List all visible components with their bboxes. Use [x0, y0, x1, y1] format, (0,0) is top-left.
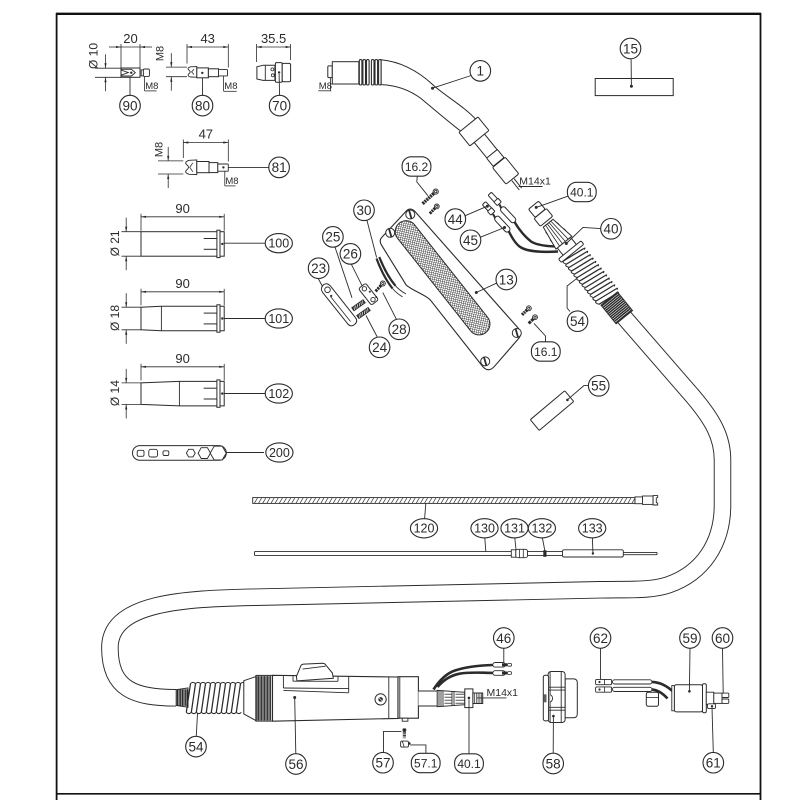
- svg-text:13: 13: [499, 272, 514, 287]
- svg-text:30: 30: [356, 203, 371, 218]
- svg-text:56: 56: [288, 757, 303, 772]
- svg-text:24: 24: [372, 340, 388, 355]
- svg-text:55: 55: [591, 379, 606, 394]
- svg-text:M8: M8: [224, 81, 237, 92]
- svg-text:130: 130: [474, 522, 495, 536]
- svg-text:62: 62: [593, 631, 608, 646]
- svg-text:57: 57: [375, 756, 390, 771]
- svg-text:20: 20: [123, 31, 137, 46]
- svg-text:100: 100: [268, 237, 289, 251]
- svg-text:90: 90: [175, 201, 189, 216]
- svg-text:16.2: 16.2: [405, 160, 429, 174]
- svg-text:132: 132: [531, 522, 552, 536]
- svg-text:54: 54: [570, 314, 586, 329]
- svg-text:M8: M8: [225, 176, 238, 187]
- svg-text:60: 60: [715, 631, 730, 646]
- svg-text:90: 90: [175, 351, 189, 366]
- svg-text:26: 26: [343, 247, 358, 262]
- svg-text:Ø 18: Ø 18: [108, 305, 122, 331]
- svg-text:43: 43: [200, 31, 214, 46]
- svg-text:81: 81: [272, 160, 287, 175]
- svg-text:M14x1: M14x1: [487, 687, 519, 699]
- svg-text:57.1: 57.1: [414, 756, 438, 770]
- svg-text:44: 44: [448, 212, 464, 227]
- svg-text:101: 101: [268, 312, 289, 326]
- svg-text:133: 133: [582, 522, 603, 536]
- svg-text:102: 102: [268, 387, 289, 401]
- svg-text:40: 40: [603, 222, 618, 237]
- svg-text:25: 25: [325, 230, 340, 245]
- svg-text:M14x1: M14x1: [519, 175, 551, 187]
- svg-text:M8: M8: [145, 81, 158, 92]
- svg-text:15: 15: [623, 41, 638, 56]
- svg-text:47: 47: [199, 127, 213, 142]
- svg-text:40.1: 40.1: [570, 185, 594, 199]
- svg-text:61: 61: [706, 756, 721, 771]
- svg-text:Ø 14: Ø 14: [108, 380, 122, 406]
- svg-text:Ø 21: Ø 21: [108, 230, 122, 256]
- svg-text:46: 46: [496, 631, 511, 646]
- svg-text:M8: M8: [319, 81, 332, 92]
- svg-text:Ø 10: Ø 10: [87, 43, 101, 69]
- svg-text:40.1: 40.1: [457, 757, 481, 771]
- svg-text:131: 131: [504, 522, 525, 536]
- svg-text:M8: M8: [154, 142, 166, 157]
- svg-text:23: 23: [311, 261, 326, 276]
- svg-text:200: 200: [269, 446, 290, 460]
- svg-text:59: 59: [682, 631, 697, 646]
- svg-text:70: 70: [272, 98, 287, 113]
- svg-text:M8: M8: [155, 46, 167, 61]
- svg-text:58: 58: [546, 756, 561, 771]
- svg-text:45: 45: [463, 233, 478, 248]
- svg-text:90: 90: [122, 98, 137, 113]
- svg-text:54: 54: [188, 739, 204, 754]
- svg-text:120: 120: [414, 522, 435, 536]
- svg-text:35.5: 35.5: [261, 31, 286, 46]
- svg-text:1: 1: [477, 64, 485, 79]
- svg-text:90: 90: [175, 276, 189, 291]
- svg-text:80: 80: [195, 98, 210, 113]
- svg-text:16.1: 16.1: [534, 345, 558, 359]
- svg-text:28: 28: [392, 322, 407, 337]
